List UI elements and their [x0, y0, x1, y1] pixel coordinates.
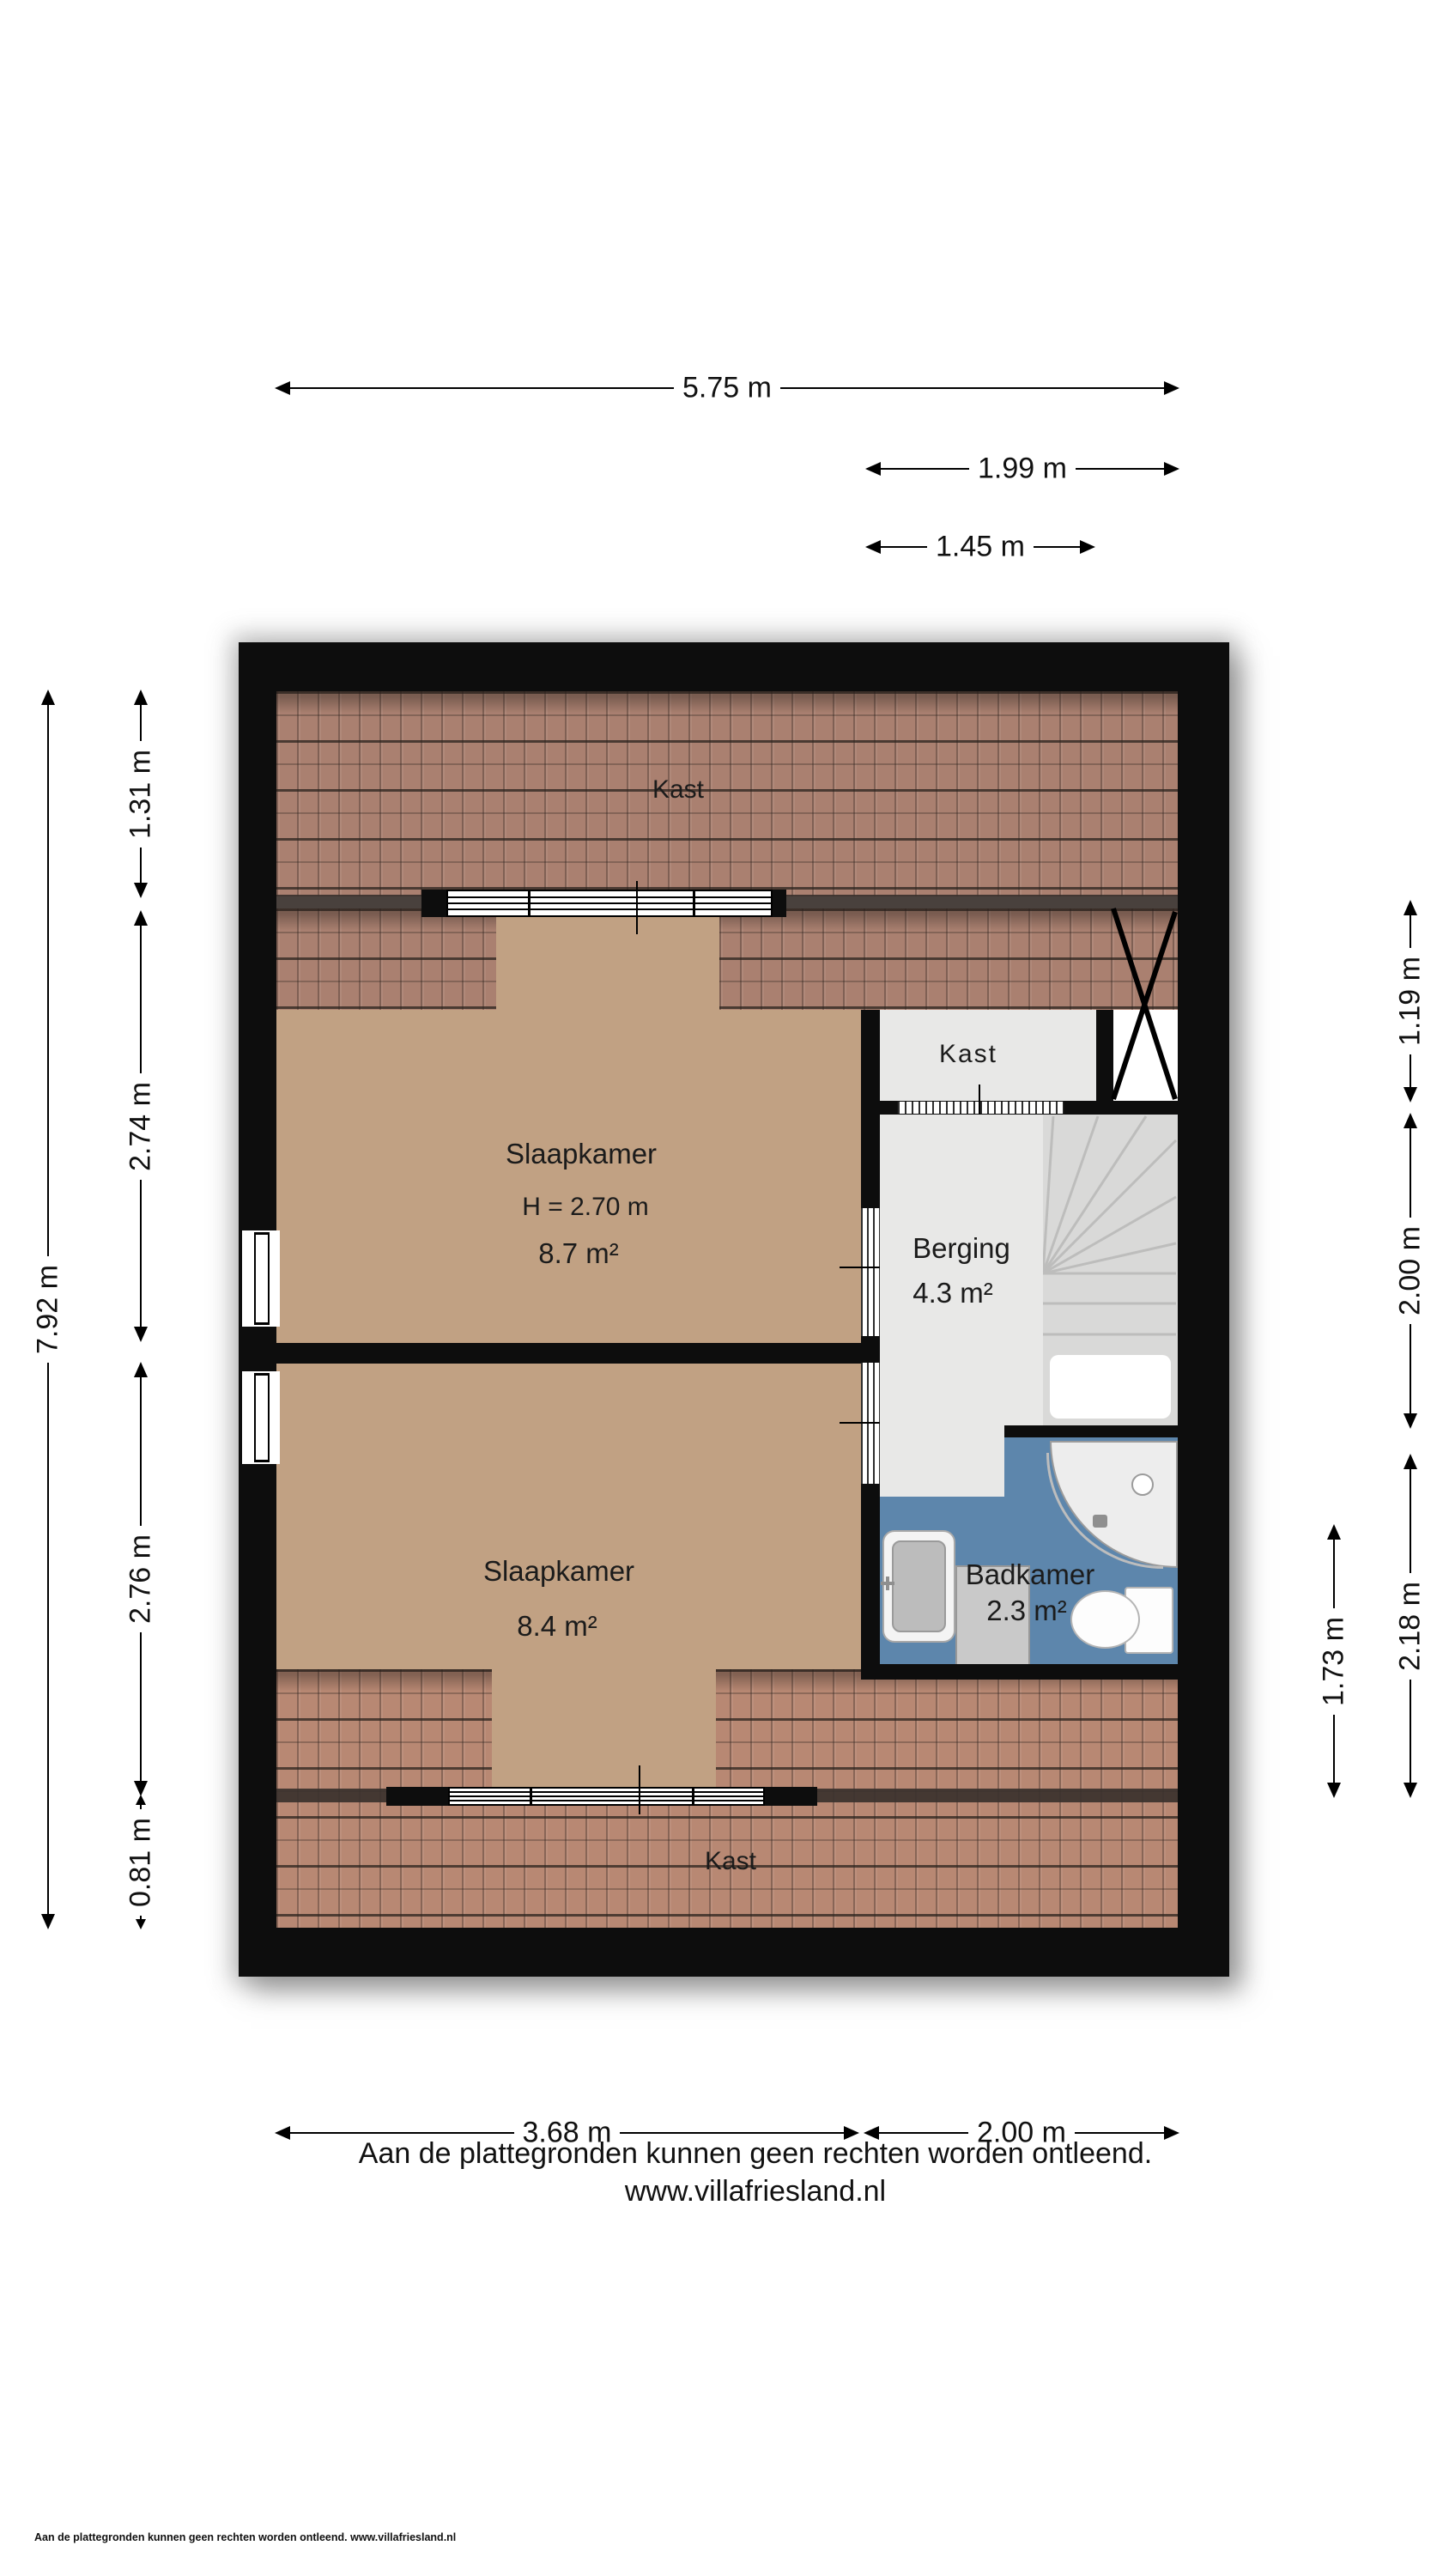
footer-website: www.villafriesland.nl — [258, 2172, 1253, 2210]
window-divider — [692, 1789, 694, 1804]
room-label-kast-mid: Kast — [939, 1040, 997, 1069]
room-area-slaapkamer-1: 8.7 m² — [538, 1237, 619, 1270]
berging-lobe — [880, 1437, 1004, 1497]
footer-disclaimer: Aan de plattegronden kunnen geen rechten… — [258, 2135, 1253, 2210]
dim-label: 1.99 m — [969, 453, 1076, 486]
washbasin-bowl — [892, 1540, 946, 1632]
dim-label: 5.75 m — [674, 372, 780, 405]
arrowhead-right-icon — [1164, 381, 1179, 395]
arrowhead-up-icon — [134, 1362, 148, 1377]
wall-hall — [861, 1336, 880, 1363]
interior-window-a — [861, 1208, 880, 1336]
dim-right-stairs: 2.00 m — [1410, 1115, 1411, 1427]
dim-bottom-hall: 2.00 m — [865, 2132, 1178, 2134]
window-cap — [421, 890, 446, 917]
window-bottom-symbol — [448, 1787, 765, 1806]
washbasin-symbol — [882, 1530, 955, 1643]
dormer-doorway-top — [496, 908, 719, 1010]
arrowhead-right-icon — [1080, 540, 1095, 554]
room-label-slaapkamer-2: Slaapkamer — [483, 1555, 634, 1588]
window-cap — [765, 1787, 817, 1806]
room-area-berging: 4.3 m² — [912, 1277, 993, 1309]
room-label-kast-top: Kast — [652, 775, 704, 805]
dim-right-void: 1.19 m — [1410, 902, 1411, 1101]
room-area-slaapkamer-2: 8.4 m² — [517, 1610, 597, 1643]
window-left-bed1-symbol — [242, 1230, 280, 1327]
arrowhead-down-icon — [41, 1914, 55, 1929]
arrowhead-up-icon — [1404, 1454, 1417, 1469]
dim-label: 2.74 m — [124, 1073, 158, 1180]
dim-left-bed2: 2.76 m — [140, 1364, 142, 1795]
arrowhead-down-icon — [134, 883, 148, 898]
window-divider — [530, 1789, 532, 1804]
arrowhead-left-icon — [865, 462, 881, 476]
arrowhead-up-icon — [1327, 1524, 1341, 1540]
room-height-slaapkamer-1: H = 2.70 m — [522, 1193, 649, 1222]
dim-label: 1.45 m — [927, 531, 1034, 564]
arrowhead-down-icon — [1404, 1413, 1417, 1429]
wall-hall — [861, 1484, 880, 1669]
arrowhead-up-icon — [1404, 900, 1417, 915]
arrowhead-down-icon — [1327, 1783, 1341, 1798]
dim-label: 7.92 m — [32, 1256, 65, 1363]
dim-label: 2.76 m — [124, 1526, 158, 1632]
dim-label: 2.18 m — [1394, 1573, 1428, 1680]
roof-window-cross-icon — [1096, 900, 1178, 1101]
room-label-slaapkamer-1: Slaapkamer — [506, 1138, 657, 1170]
dim-bottom-bed: 3.68 m — [276, 2132, 858, 2134]
dormer-doorway-bottom — [492, 1669, 716, 1790]
toilet-bowl — [1070, 1590, 1140, 1649]
dim-label: 1.31 m — [124, 741, 158, 848]
window-center-tick — [636, 881, 638, 934]
dim-top-hall: 1.99 m — [867, 468, 1178, 470]
arrowhead-up-icon — [134, 690, 148, 705]
small-print: Aan de plattegronden kunnen geen rechten… — [34, 2531, 456, 2543]
window-cap — [386, 1787, 448, 1806]
floorplan: Kast Slaapkamer H = 2.70 m 8.7 m² Slaapk… — [239, 642, 1229, 1977]
window-cap — [773, 890, 786, 917]
arrowhead-left-icon — [865, 540, 881, 554]
room-slaapkamer-1 — [276, 1010, 861, 1343]
dim-right-bath: 2.18 m — [1410, 1455, 1411, 1796]
room-label-berging: Berging — [912, 1232, 1010, 1265]
arrowhead-down-icon — [134, 1327, 148, 1342]
dim-left-total: 7.92 m — [47, 691, 49, 1928]
arrowhead-up-icon — [1404, 1113, 1417, 1128]
window-glass — [254, 1373, 270, 1462]
dim-right-bath-inner: 1.73 m — [1333, 1526, 1335, 1796]
roof-tiles-top — [276, 691, 1178, 896]
wall-hall — [861, 1010, 880, 1208]
dim-left-bed1: 2.74 m — [140, 912, 142, 1340]
window-divider — [528, 891, 530, 915]
window-divider — [693, 891, 695, 915]
window-top-symbol — [446, 890, 773, 917]
washbasin-tap-icon — [886, 1577, 889, 1590]
arrowhead-down-icon — [1404, 1783, 1417, 1798]
arrowhead-up-icon — [41, 690, 55, 705]
roof-tiles-strip-left — [276, 908, 496, 1010]
shower-faucet-icon — [1131, 1473, 1154, 1496]
wall-bath-top — [1028, 1425, 1178, 1437]
arrowhead-up-icon — [136, 1795, 146, 1805]
wall-bath-bottom — [861, 1664, 1178, 1680]
dim-left-top: 1.31 m — [140, 691, 142, 896]
dim-left-bottom: 0.81 m — [140, 1796, 142, 1928]
dim-label: 0.81 m — [124, 1809, 158, 1916]
dim-top-hall-inner: 1.45 m — [867, 546, 1094, 548]
arrowhead-left-icon — [275, 381, 290, 395]
footer-line-1: Aan de plattegronden kunnen geen rechten… — [258, 2135, 1253, 2172]
window-glass — [254, 1232, 270, 1325]
wall-bedroom-divider — [276, 1343, 861, 1364]
room-area-badkamer: 2.3 m² — [986, 1595, 1067, 1627]
window-center-tick — [639, 1765, 640, 1814]
stairs-symbol — [1043, 1115, 1178, 1425]
room-label-kast-bottom: Kast — [705, 1847, 756, 1876]
arrowhead-right-icon — [1164, 462, 1179, 476]
shower-drain-icon — [1093, 1515, 1107, 1528]
arrowhead-down-icon — [136, 1919, 146, 1929]
window-left-bed2-symbol — [242, 1371, 280, 1464]
dim-label: 1.19 m — [1394, 948, 1428, 1054]
sliding-door-kast — [897, 1101, 1064, 1115]
dim-label: 2.00 m — [1394, 1218, 1428, 1324]
arrowhead-down-icon — [1404, 1087, 1417, 1103]
room-label-badkamer: Badkamer — [966, 1558, 1094, 1591]
dim-label: 1.73 m — [1318, 1608, 1351, 1715]
dim-top-total: 5.75 m — [276, 387, 1178, 389]
arrowhead-up-icon — [134, 910, 148, 926]
